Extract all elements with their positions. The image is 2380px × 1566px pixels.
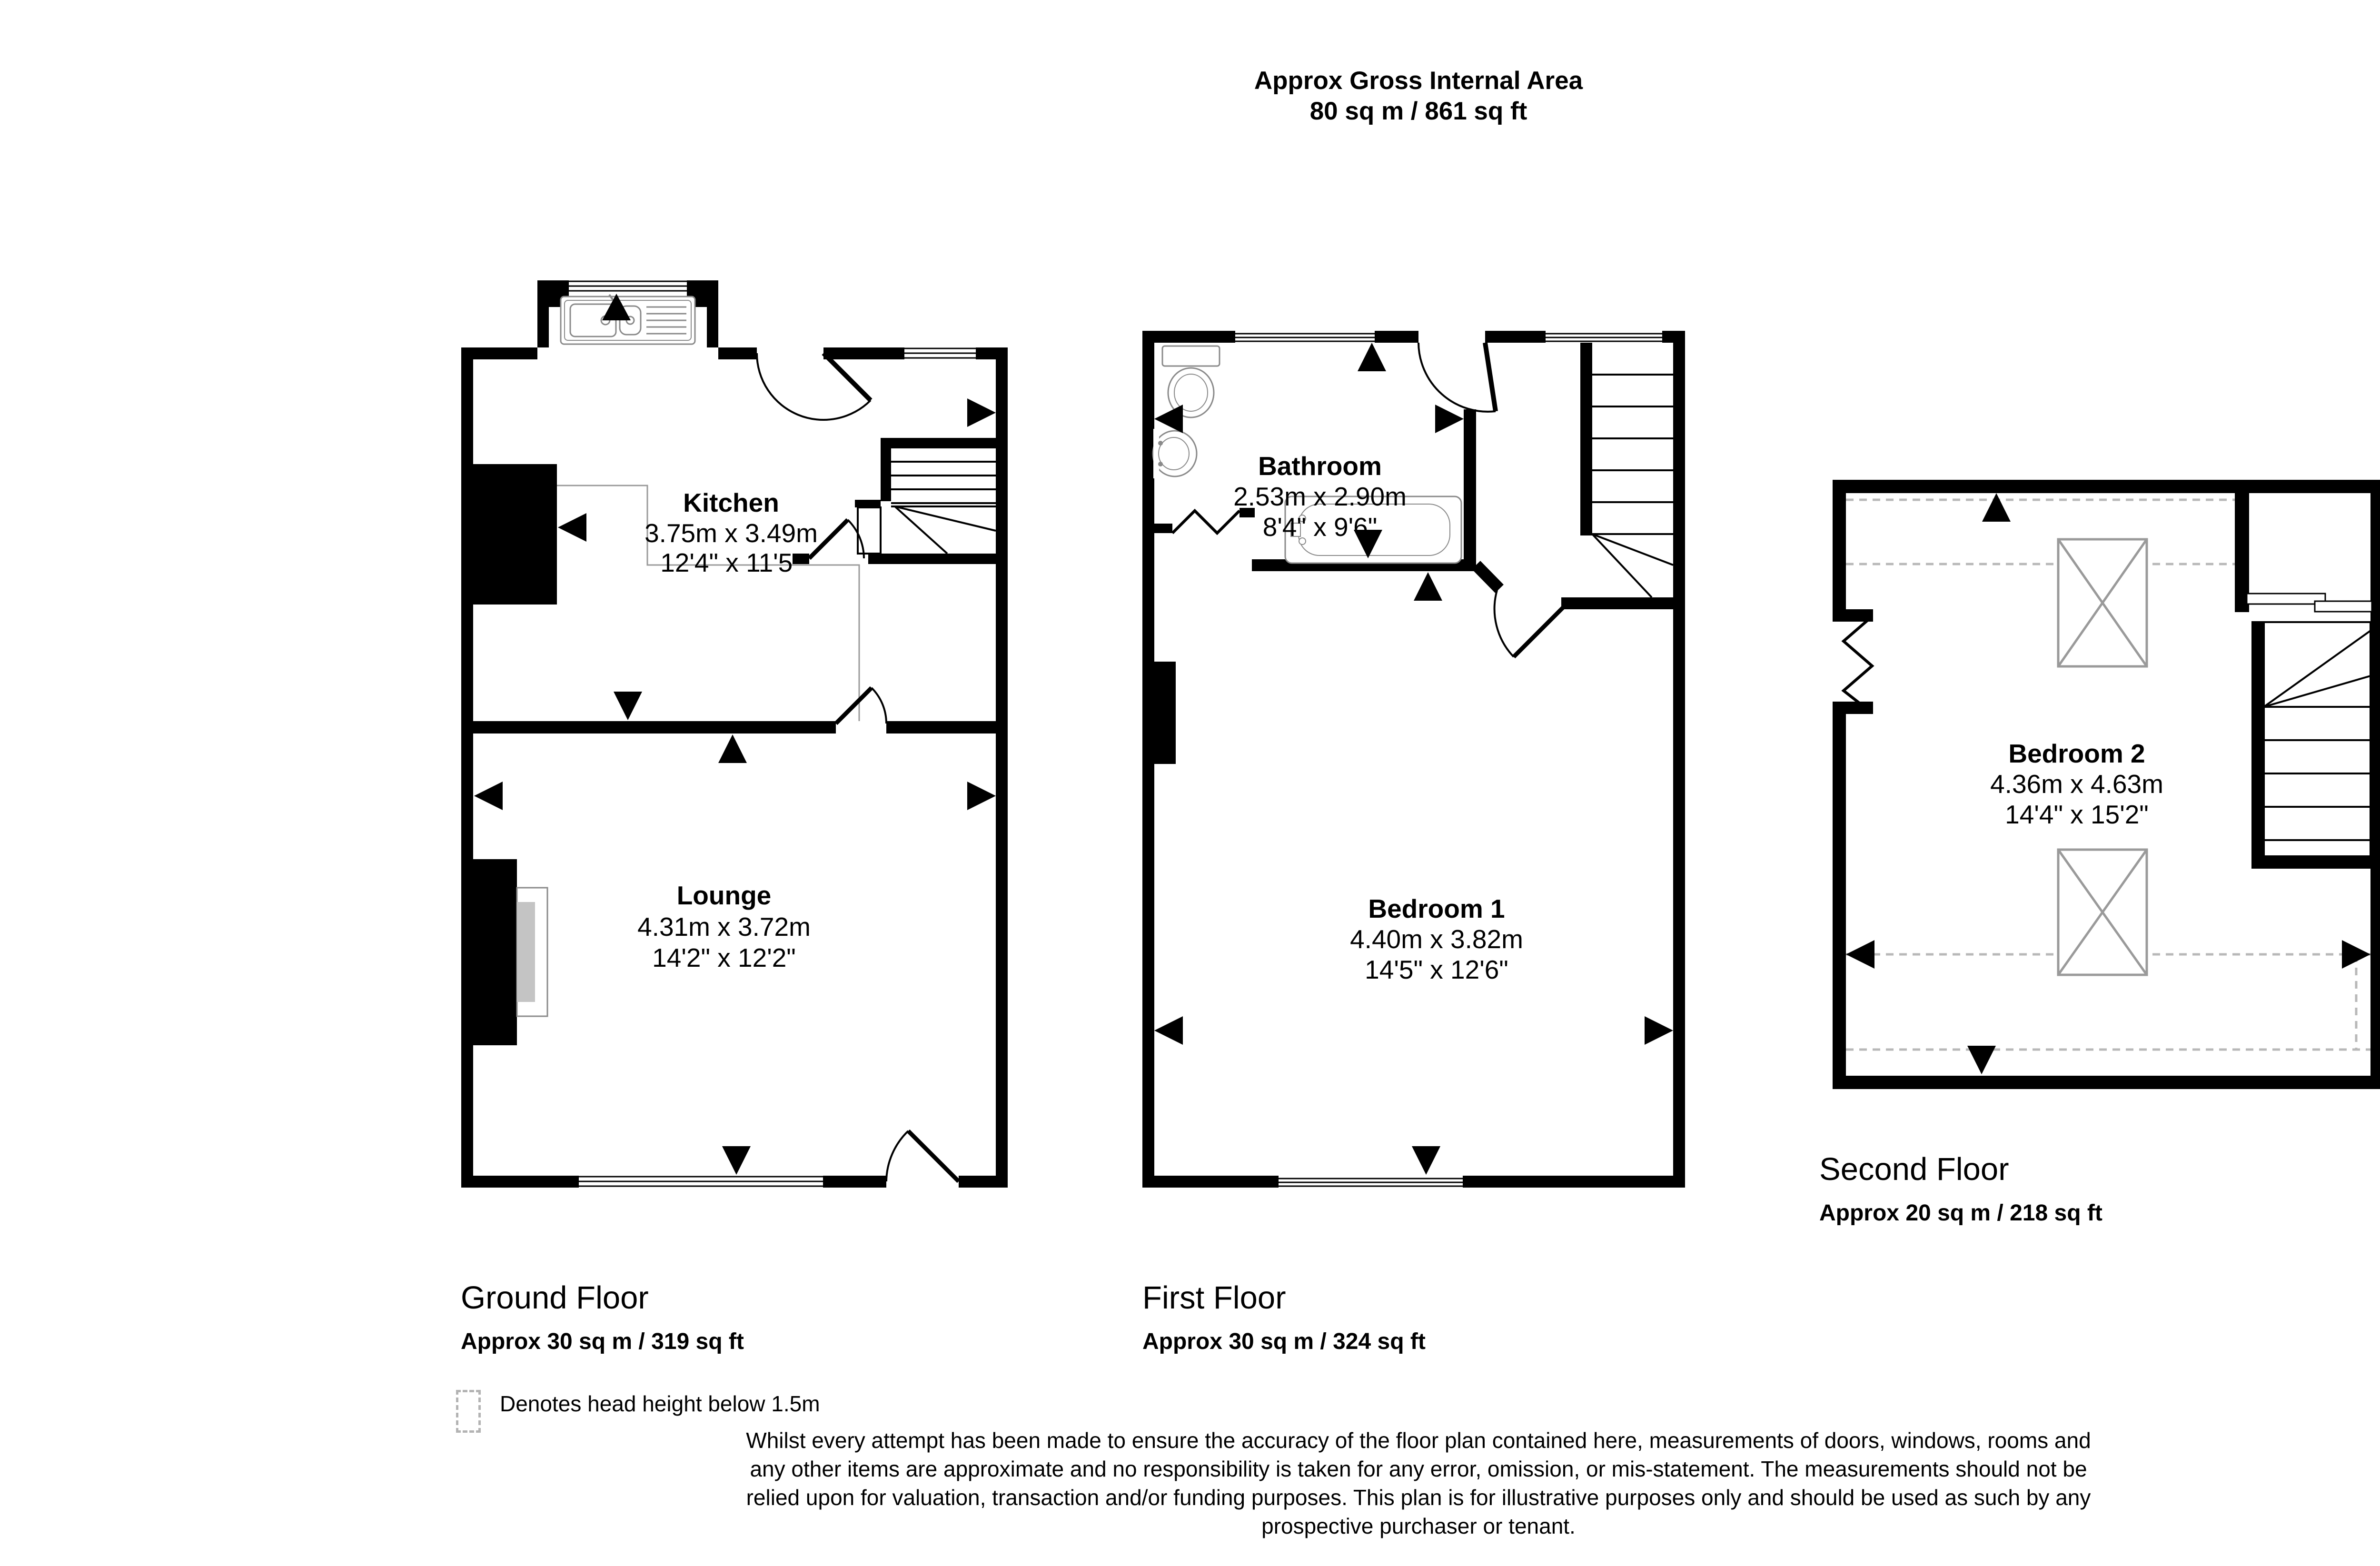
skylight-1	[2058, 539, 2147, 666]
fireplace	[517, 888, 547, 1016]
ground-floor-plan: Kitchen 3.75m x 3.49m 12'4" x 11'5" Loun…	[452, 274, 1019, 1204]
bathroom-dim-metric: 2.53m x 2.90m	[1233, 482, 1407, 511]
second-floor-name: Second Floor	[1819, 1151, 2102, 1188]
kitchen-label: Kitchen	[683, 488, 779, 517]
disclaimer-line-3: relied upon for valuation, transaction a…	[571, 1483, 2266, 1512]
lounge-label: Lounge	[677, 881, 772, 910]
dormer-window	[2247, 594, 2372, 612]
bay-window	[569, 278, 687, 294]
kitchen-dim-metric: 3.75m x 3.49m	[645, 518, 818, 548]
first-stairs	[1592, 375, 1673, 597]
bedroom1-dim-metric: 4.40m x 3.82m	[1350, 924, 1523, 954]
ground-floor-caption: Ground Floor Approx 30 sq m / 319 sq ft	[461, 1279, 744, 1355]
bedroom1-dim-imperial: 14'5" x 12'6"	[1365, 955, 1508, 984]
lounge-dim-imperial: 14'2" x 12'2"	[652, 943, 796, 972]
lounge-dim-metric: 4.31m x 3.72m	[637, 912, 811, 942]
bedroom2-dim-imperial: 14'4" x 15'2"	[2005, 800, 2149, 829]
toilet	[1162, 346, 1220, 417]
ground-measure-arrows	[474, 294, 996, 1175]
first-floor-area: Approx 30 sq m / 324 sq ft	[1142, 1328, 1426, 1355]
first-measure-arrows	[1154, 343, 1673, 1175]
ground-windows	[579, 346, 976, 1189]
head-height-legend-icon	[456, 1390, 481, 1433]
landing-diagonal-wall	[1476, 565, 1499, 589]
ground-stairs	[858, 462, 996, 554]
ground-walls	[461, 280, 1008, 1188]
bedroom1-label: Bedroom 1	[1368, 894, 1505, 923]
bifold-door	[1172, 511, 1240, 533]
disclaimer-line-4: prospective purchaser or tenant.	[571, 1512, 2266, 1540]
second-floor-plan: Bedroom 2 4.36m x 4.63m 14'4" x 15'2"	[1816, 474, 2380, 1097]
bathroom-label: Bathroom	[1258, 451, 1382, 481]
disclaimer-line-2: any other items are approximate and no r…	[571, 1455, 2266, 1483]
wash-basin	[1153, 429, 1197, 478]
bifold-cupboard-door	[1844, 616, 1872, 713]
title-line2: 80 sq m / 861 sq ft	[1085, 96, 1752, 127]
ground-floor-area: Approx 30 sq m / 319 sq ft	[461, 1328, 744, 1355]
disclaimer-line-1: Whilst every attempt has been made to en…	[571, 1426, 2266, 1455]
first-floor-plan: Bathroom 2.53m x 2.90m 8'4" x 9'6" Bedro…	[1133, 321, 1697, 1211]
page-title: Approx Gross Internal Area 80 sq m / 861…	[1085, 66, 1752, 127]
first-walls	[1142, 331, 1685, 1188]
ground-doors	[757, 353, 959, 1181]
second-floor-caption: Second Floor Approx 20 sq m / 218 sq ft	[1819, 1151, 2102, 1226]
skylight-2	[2058, 850, 2147, 975]
kitchen-dim-imperial: 12'4" x 11'5"	[660, 548, 802, 577]
head-height-legend-label: Denotes head height below 1.5m	[500, 1391, 820, 1417]
first-floor-caption: First Floor Approx 30 sq m / 324 sq ft	[1142, 1279, 1426, 1355]
first-floor-name: First Floor	[1142, 1279, 1426, 1316]
disclaimer: Whilst every attempt has been made to en…	[571, 1426, 2266, 1540]
second-stairs	[2264, 622, 2370, 856]
bedroom2-dim-metric: 4.36m x 4.63m	[1990, 769, 2163, 799]
bathroom-dim-imperial: 8'4" x 9'6"	[1263, 512, 1377, 542]
second-floor-area: Approx 20 sq m / 218 sq ft	[1819, 1200, 2102, 1226]
bedroom2-label: Bedroom 2	[2008, 739, 2145, 768]
title-line1: Approx Gross Internal Area	[1085, 66, 1752, 96]
ground-floor-name: Ground Floor	[461, 1279, 744, 1316]
